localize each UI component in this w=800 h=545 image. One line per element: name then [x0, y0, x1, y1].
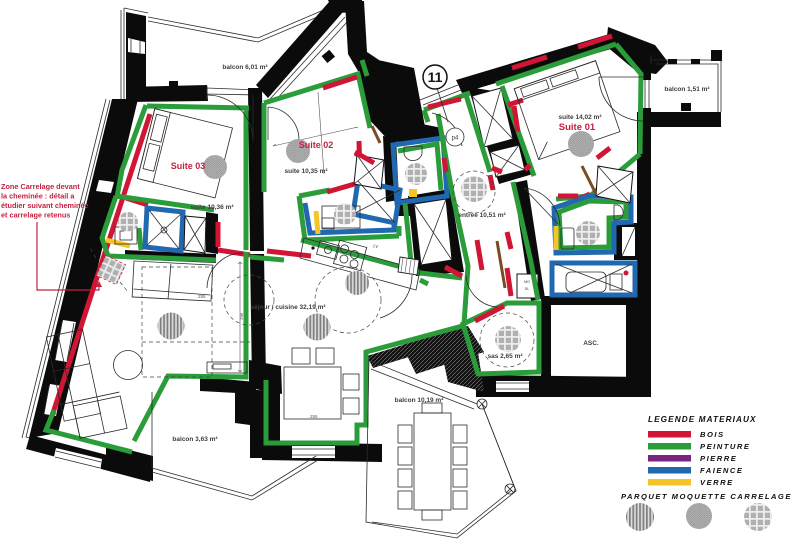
svg-text:11: 11: [428, 69, 443, 85]
svg-text:ASC.: ASC.: [583, 340, 599, 347]
svg-text:FAIENCE: FAIENCE: [700, 466, 743, 475]
svg-text:PARQUET MOQUETTE CARRELAGE: PARQUET MOQUETTE CARRELAGE: [621, 492, 792, 501]
svg-text:Suite 02: Suite 02: [299, 140, 334, 150]
svg-text:balcon 10,19 m²: balcon 10,19 m²: [395, 397, 445, 404]
svg-text:255: 255: [310, 414, 318, 419]
svg-text:SL: SL: [525, 287, 529, 291]
svg-text:suite 10,35 m²: suite 10,35 m²: [285, 168, 329, 175]
svg-text:LEGENDE MATERIAUX: LEGENDE MATERIAUX: [648, 415, 757, 424]
svg-text:et carrelage retenus: et carrelage retenus: [1, 211, 70, 220]
svg-text:PEINTURE: PEINTURE: [700, 442, 750, 451]
svg-text:étudier suivant cheminée: étudier suivant cheminée: [1, 201, 89, 210]
svg-text:balcon 1,51 m²: balcon 1,51 m²: [664, 86, 710, 93]
svg-text:MO: MO: [524, 280, 530, 284]
svg-text:Suite 01: Suite 01: [559, 122, 596, 133]
svg-text:VERRE: VERRE: [700, 478, 734, 487]
svg-text:255: 255: [198, 294, 206, 299]
svg-text:sas 2,65 m²: sas 2,65 m²: [487, 353, 523, 360]
svg-text:298: 298: [239, 312, 244, 320]
svg-text:séjour / cuisine 32,19 m²: séjour / cuisine 32,19 m²: [250, 304, 326, 311]
svg-text:Zone Carrelage devant: Zone Carrelage devant: [1, 182, 80, 191]
svg-text:la cheminée : détail a: la cheminée : détail a: [1, 192, 75, 201]
svg-text:balcon 6,01 m²: balcon 6,01 m²: [222, 64, 268, 71]
svg-text:Suite 03: Suite 03: [171, 161, 206, 171]
svg-text:entrée 10,51 m²: entrée 10,51 m²: [458, 212, 506, 219]
svg-text:BOIS: BOIS: [700, 430, 725, 439]
svg-text:PIERRE: PIERRE: [700, 454, 737, 463]
svg-text:suite 10,36 m²: suite 10,36 m²: [191, 204, 235, 211]
svg-text:balcon 3,63 m²: balcon 3,63 m²: [172, 436, 218, 443]
svg-text:suite 14,02 m²: suite 14,02 m²: [559, 114, 603, 121]
svg-text:p4: p4: [452, 136, 459, 142]
